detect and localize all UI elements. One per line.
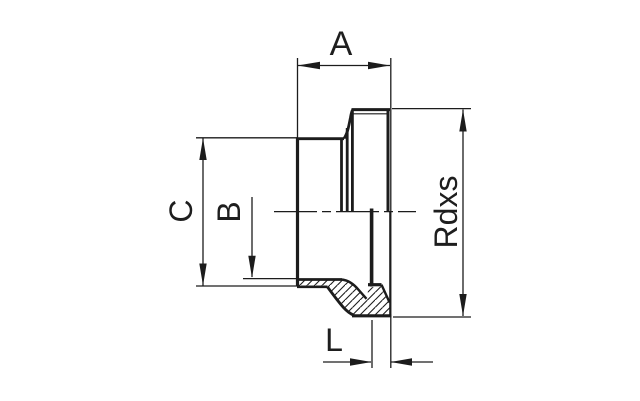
technical-drawing: A C B Rdxs L [0,0,640,401]
drawing-canvas: A C B Rdxs L [0,0,640,401]
label-dimension-a: A [330,25,353,63]
label-dimension-c: C [163,199,199,222]
label-dimension-l: L [325,322,343,358]
label-dimension-b: B [211,201,247,222]
label-dimension-rdxs: Rdxs [428,176,464,249]
drawing-background [0,0,640,401]
